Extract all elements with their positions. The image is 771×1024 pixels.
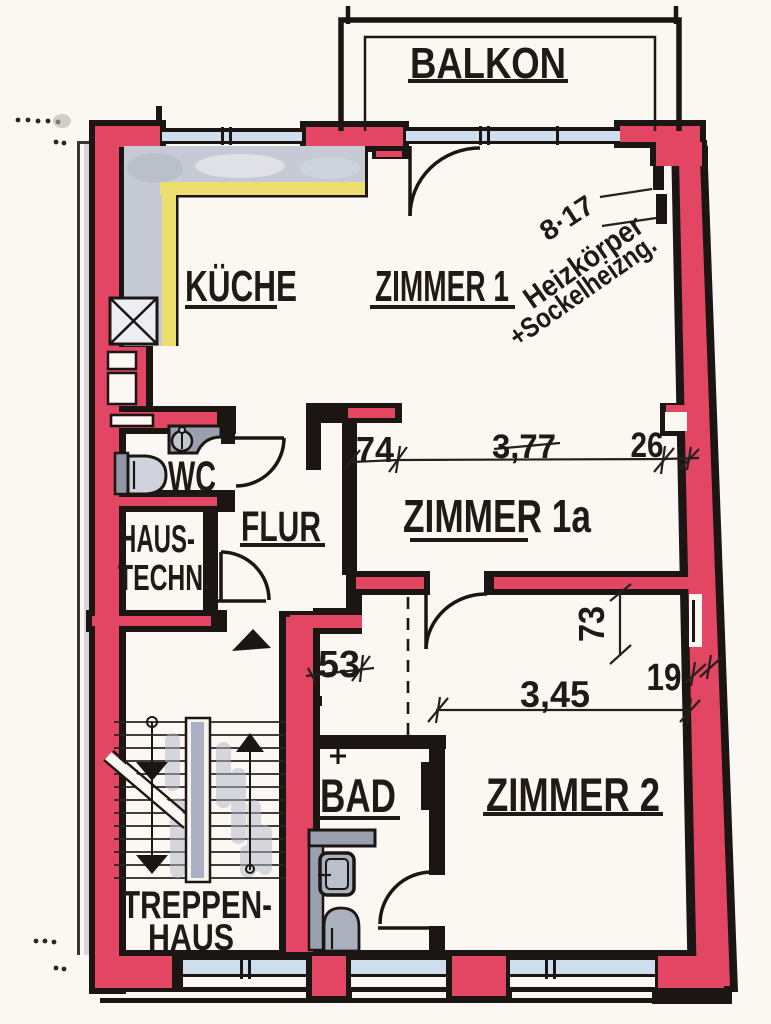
svg-text:KÜCHE: KÜCHE [185, 262, 297, 311]
svg-text:ZIMMER 1a: ZIMMER 1a [403, 490, 591, 542]
svg-text:73: 73 [571, 606, 612, 642]
svg-text:BAD: BAD [320, 769, 396, 822]
svg-text:ZIMMER 1: ZIMMER 1 [375, 262, 509, 311]
svg-text:74: 74 [356, 429, 394, 470]
svg-text:3,77: 3,77 [492, 428, 556, 466]
svg-text:19: 19 [647, 657, 682, 699]
svg-text:HAUS: HAUS [148, 917, 234, 958]
svg-text:TECHN.: TECHN. [118, 557, 210, 598]
svg-text:26: 26 [631, 426, 664, 465]
svg-text:3,45: 3,45 [520, 674, 590, 715]
svg-text:53: 53 [318, 644, 360, 686]
svg-text:HAUS-: HAUS- [119, 518, 195, 561]
